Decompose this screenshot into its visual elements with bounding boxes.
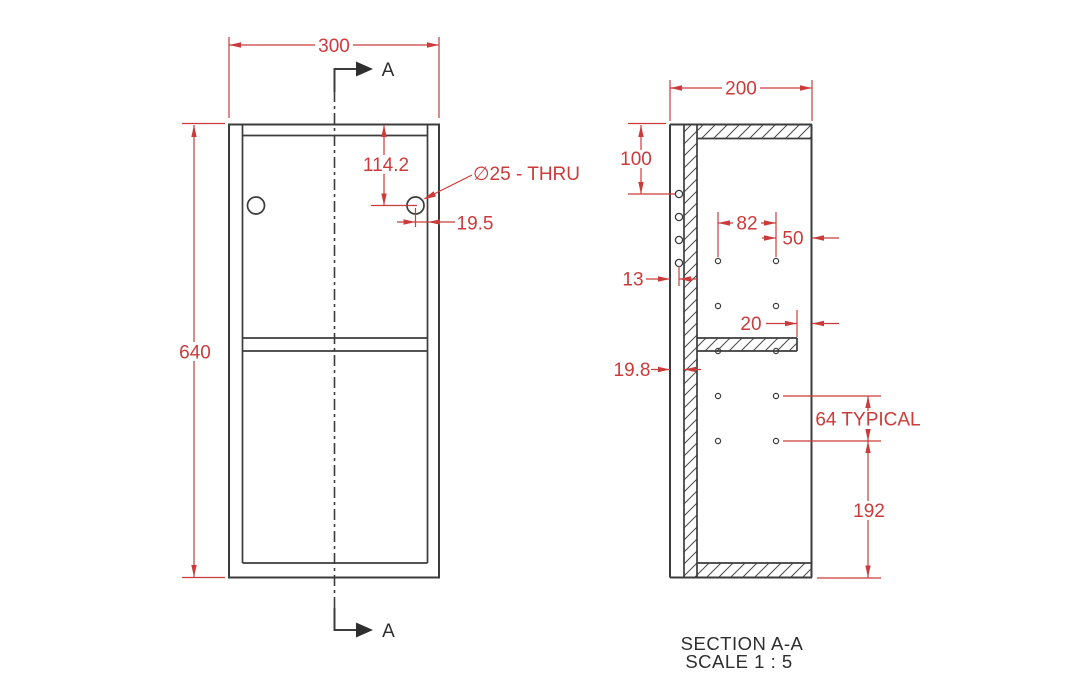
dimension-text-backers xyxy=(177,36,912,520)
dim-panel-thickness: 19.8 xyxy=(614,360,651,381)
section-view xyxy=(670,125,812,578)
dim-section-depth: 200 xyxy=(725,79,757,100)
dim-front-height: 640 xyxy=(179,343,211,364)
section-arrow-top-head xyxy=(356,62,373,77)
dim-hole-vertical: 114.2 xyxy=(363,155,409,176)
dim-bottom-offset: 192 xyxy=(853,501,885,522)
section-scale: SCALE 1 : 5 xyxy=(685,651,792,672)
section-top-wall-hatch xyxy=(697,125,812,139)
front-hole-left xyxy=(248,197,265,214)
section-arrow-bottom-head xyxy=(356,623,373,638)
dim-top-offset: 100 xyxy=(620,149,652,170)
dim-front-width: 300 xyxy=(318,36,350,57)
section-shelf-hatch xyxy=(697,338,797,351)
dim-hole-edge: 19.5 xyxy=(457,214,494,235)
section-letter-top: A xyxy=(382,60,395,81)
hole-callout-label: ∅25 - THRU xyxy=(473,164,580,185)
dim-back-hole-offset: 13 xyxy=(622,270,643,291)
section-left-wall-hatch xyxy=(684,125,697,578)
section-arrow-top-elbow xyxy=(335,69,357,92)
front-view-dimensions xyxy=(182,37,472,578)
dim-hole-span: 82 xyxy=(736,214,757,235)
section-arrow-bottom-elbow xyxy=(335,608,357,630)
cad-drawing-canvas: 300 640 114.2 19.5 ∅25 - THRU A A 200 10… xyxy=(0,0,1091,700)
dim-front-offset: 50 xyxy=(782,229,803,250)
dim-shelf-setback: 20 xyxy=(740,314,761,335)
front-view xyxy=(229,62,439,638)
section-letter-bottom: A xyxy=(382,621,395,642)
back-panel-holes xyxy=(675,190,682,266)
hole-callout-arrow xyxy=(423,191,436,199)
section-bottom-wall-hatch xyxy=(697,563,812,578)
dim-typical-spacing: 64 TYPICAL xyxy=(815,410,920,431)
